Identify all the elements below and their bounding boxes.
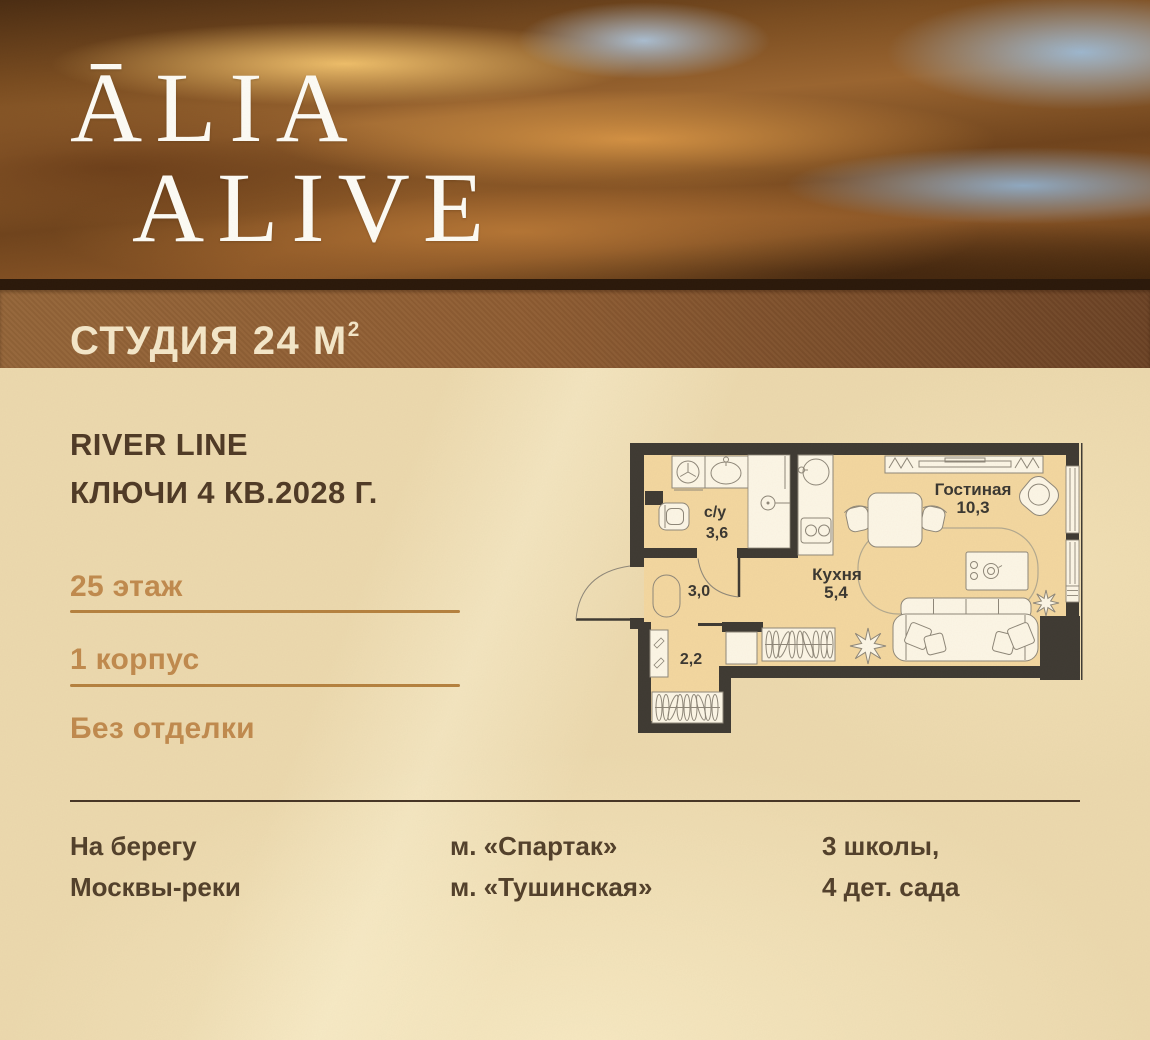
shaft [726,632,757,664]
footer-metro: м. «Спартак» м. «Тушинская» [450,826,652,908]
dining-table [868,493,922,547]
hallway-area: 3,0 [688,583,710,600]
footer-infra-line1: 3 школы, [822,826,959,867]
footer-metro-line2: м. «Тушинская» [450,867,652,908]
plant-left [850,628,886,664]
studio-title-text: СТУДИЯ 24 М [70,319,348,363]
brand-logo-line2: ALIVE [132,158,497,258]
shoe-cabinet [650,630,668,677]
pillow [923,632,946,655]
floor-label: 25 этаж [70,570,183,604]
project-name: RIVER LINE [70,421,378,469]
rule-under-floor [70,610,460,613]
header-water-photo: ĀLIA ALIVE [0,0,1150,290]
kitchen-counter [798,455,833,555]
square-meter-sup: 2 [348,318,360,341]
plant-right [1033,590,1059,616]
brand-logo-line1: ĀLIA [70,58,361,158]
shower [748,455,790,548]
wardrobe-area: 2,2 [680,651,702,668]
window-2 [1066,540,1079,586]
sofa [893,598,1038,661]
window-1 [1066,466,1079,533]
real-estate-flyer: ĀLIA ALIVE СТУДИЯ 24 М2 RIVER LINE КЛЮЧИ… [0,0,1150,1040]
footer-infrastructure: 3 школы, 4 дет. сада [822,826,959,908]
toilet [659,503,689,530]
building-label: 1 корпус [70,643,199,677]
rule-under-building [70,684,460,687]
kitchen-area: 5,4 [824,583,848,602]
living-label: Гостиная [935,480,1012,499]
project-block: RIVER LINE КЛЮЧИ 4 КВ.2028 Г. [70,421,378,517]
bathroom-label: с/у [704,504,726,521]
window-panel [1066,586,1079,602]
keys-date: КЛЮЧИ 4 КВ.2028 Г. [70,469,378,517]
coffee-table [966,552,1028,590]
entrance-door-arc [576,566,630,620]
footer-location: На берегу Москвы-реки [70,826,241,908]
wardrobe-unit [885,456,1043,473]
floorplan: с/у 3,6 3,0 2,2 Кухня 5,4 Гостиная 10,3 [570,437,1085,737]
studio-banner: СТУДИЯ 24 М2 [0,290,1150,368]
footer-metro-line1: м. «Спартак» [450,826,652,867]
kitchen-label: Кухня [812,565,862,584]
studio-title: СТУДИЯ 24 М2 [70,290,359,368]
living-area: 10,3 [956,498,989,517]
floorplan-svg: с/у 3,6 3,0 2,2 Кухня 5,4 Гостиная 10,3 [570,437,1085,737]
hanger-rail-kitchen [762,628,835,661]
footer-location-line1: На берегу [70,826,241,867]
bathroom-area: 3,6 [706,525,728,542]
footer-divider [70,800,1080,802]
finish-label: Без отделки [70,712,255,746]
footer-location-line2: Москвы-реки [70,867,241,908]
footer-infra-line2: 4 дет. сада [822,867,959,908]
